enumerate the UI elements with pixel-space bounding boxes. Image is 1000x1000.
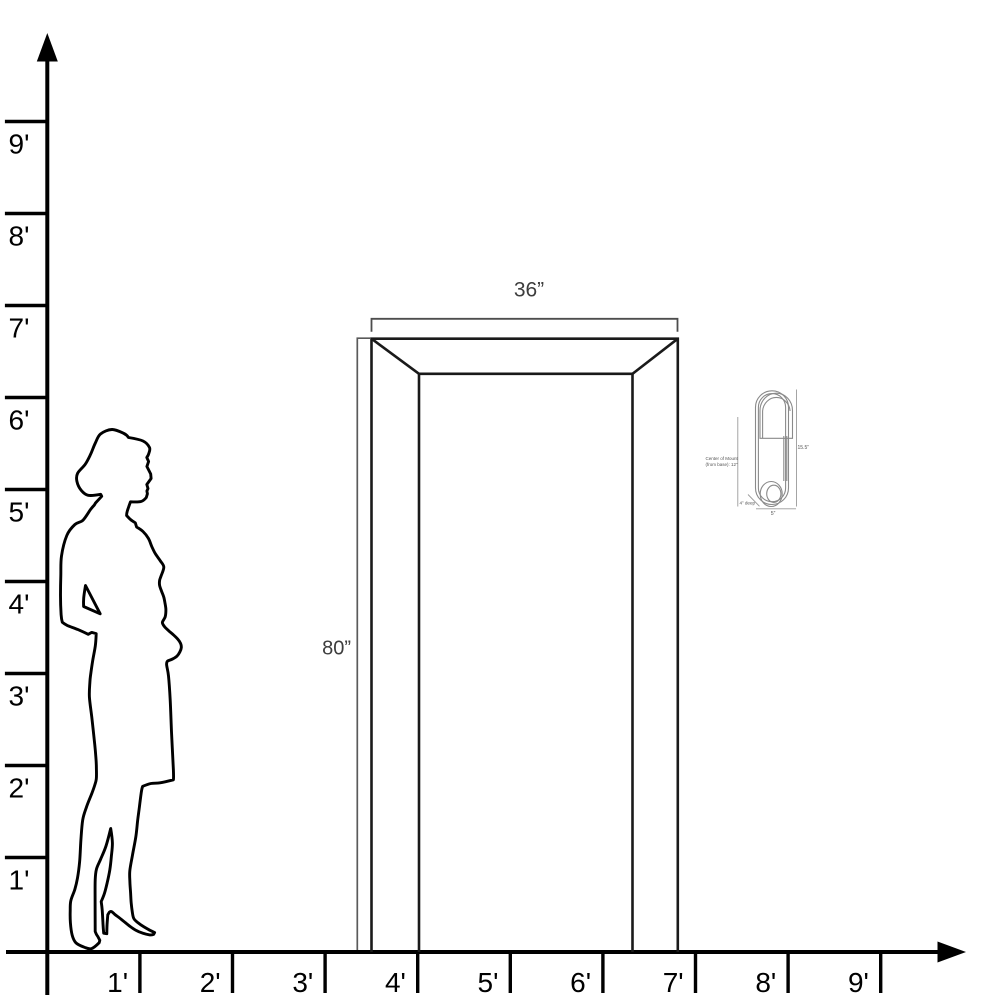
svg-text:7': 7' bbox=[663, 967, 684, 998]
svg-text:6': 6' bbox=[570, 967, 591, 998]
svg-text:15.5”: 15.5” bbox=[798, 445, 810, 451]
svg-text:1': 1' bbox=[9, 864, 30, 895]
svg-text:Center of Mount: Center of Mount bbox=[706, 456, 739, 461]
svg-text:9': 9' bbox=[9, 128, 30, 159]
svg-text:8': 8' bbox=[755, 967, 776, 998]
svg-text:80”: 80” bbox=[322, 638, 351, 660]
svg-text:6': 6' bbox=[9, 404, 30, 435]
svg-text:36”: 36” bbox=[514, 279, 544, 302]
svg-text:8': 8' bbox=[9, 220, 30, 251]
svg-text:2': 2' bbox=[9, 772, 30, 803]
svg-text:4” deep: 4” deep bbox=[740, 500, 756, 505]
svg-text:9': 9' bbox=[848, 967, 869, 998]
svg-text:3': 3' bbox=[9, 680, 30, 711]
svg-text:1': 1' bbox=[107, 967, 128, 998]
svg-text:4': 4' bbox=[385, 967, 406, 998]
svg-text:5”: 5” bbox=[771, 511, 776, 517]
svg-text:(from base): 12”: (from base): 12” bbox=[706, 462, 739, 467]
svg-text:5': 5' bbox=[478, 967, 499, 998]
svg-text:5': 5' bbox=[9, 496, 30, 527]
svg-text:4': 4' bbox=[9, 588, 30, 619]
svg-text:7': 7' bbox=[9, 312, 30, 343]
svg-text:3': 3' bbox=[292, 967, 313, 998]
svg-text:2': 2' bbox=[200, 967, 221, 998]
